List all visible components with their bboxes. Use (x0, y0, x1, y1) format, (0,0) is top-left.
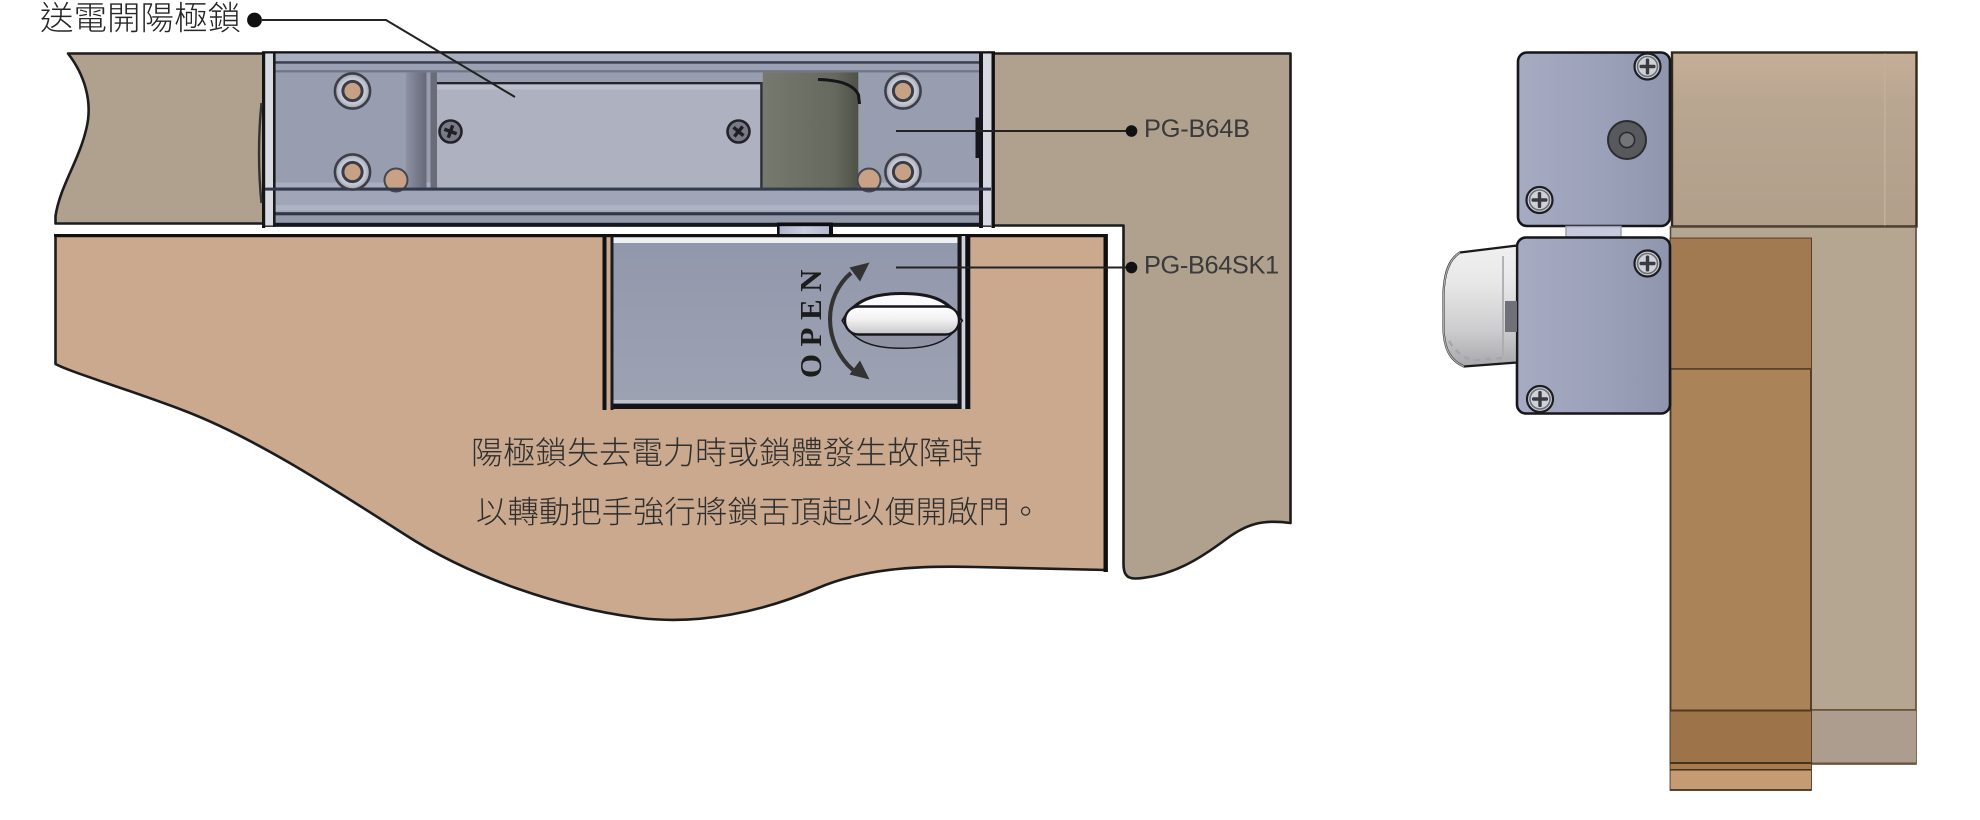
svg-text:PG-B64B: PG-B64B (1144, 115, 1250, 143)
svg-text:PG-B64SK1: PG-B64SK1 (1144, 252, 1279, 280)
svg-text:OPEN: OPEN (793, 262, 828, 378)
